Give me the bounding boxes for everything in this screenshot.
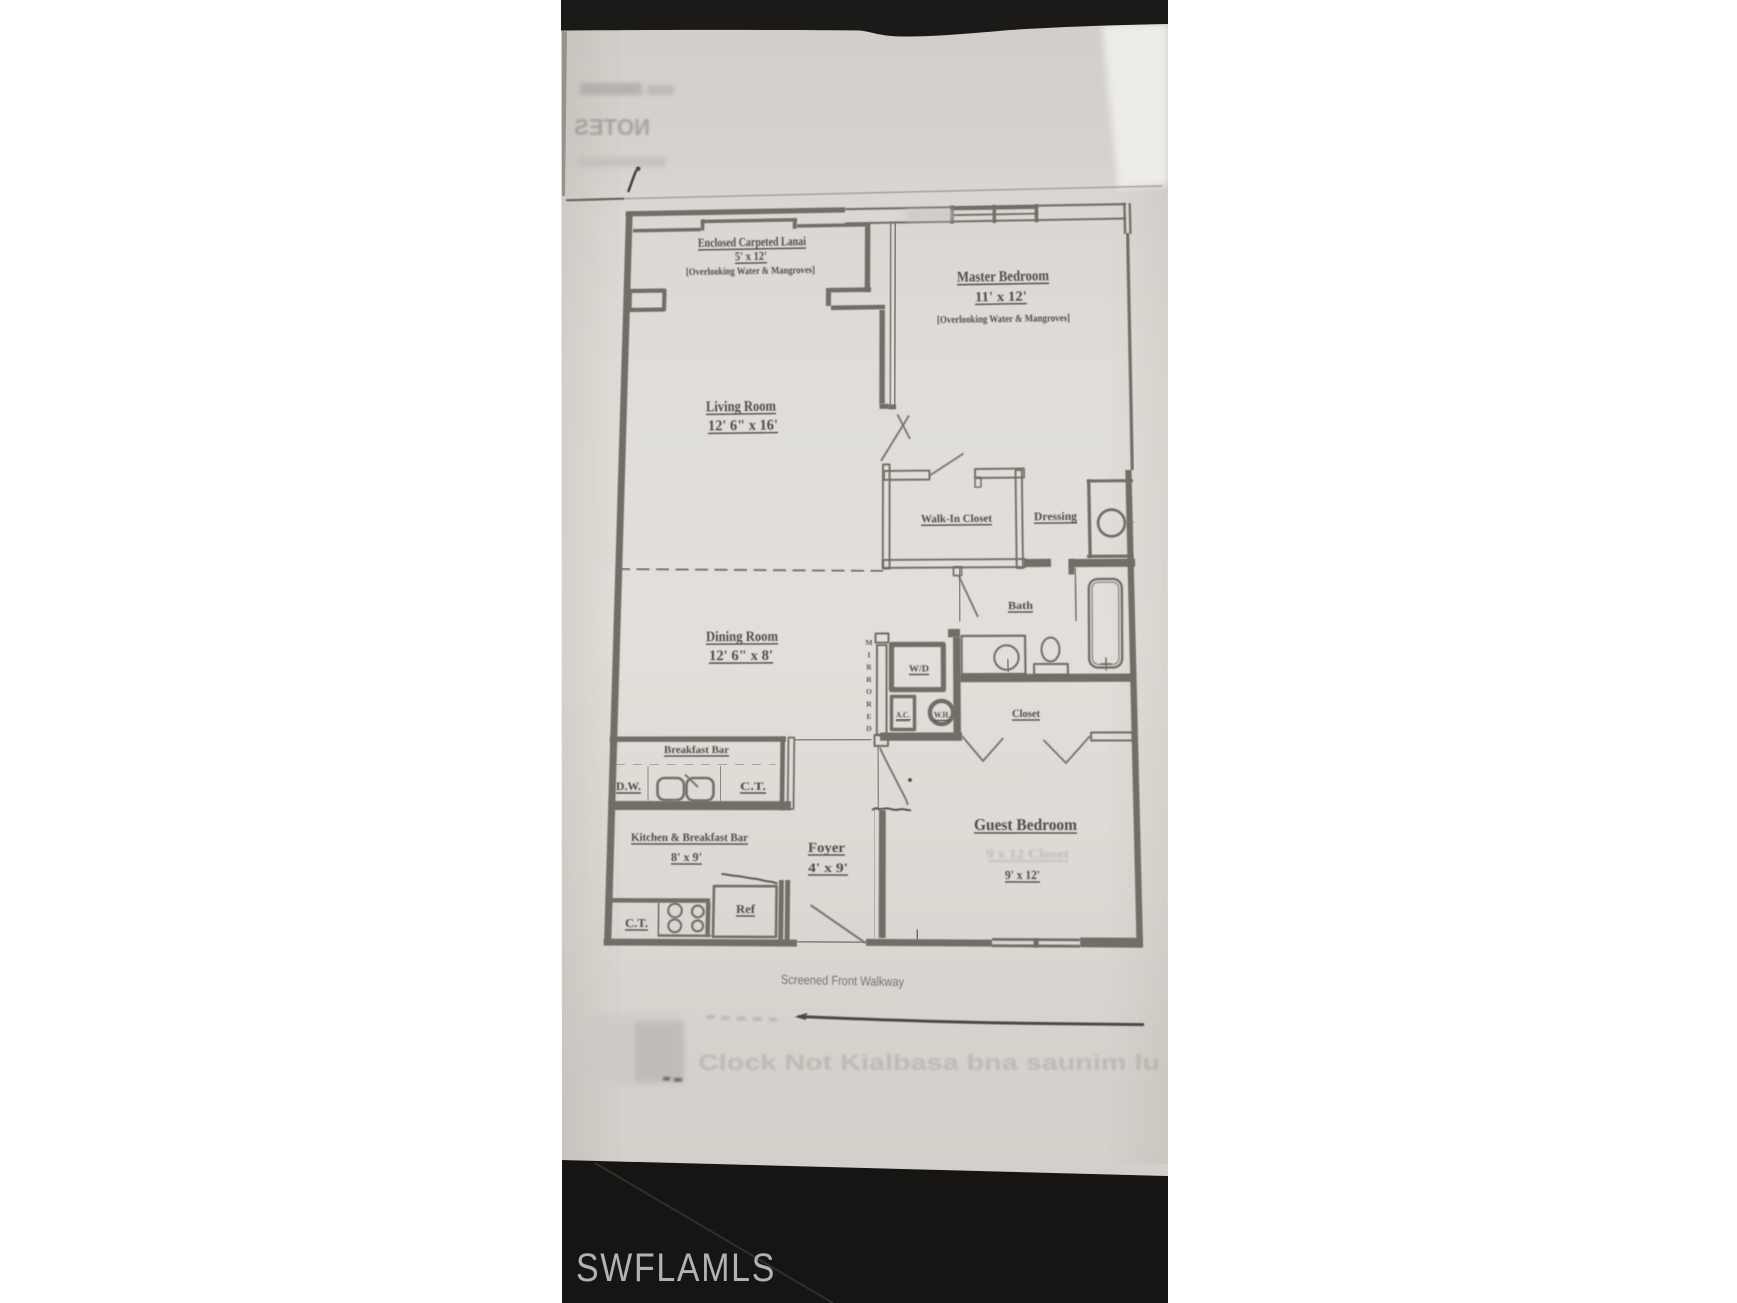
svg-text:Clock Not Kialbasa bna saunim: Clock Not Kialbasa bna saunim lu (698, 1050, 1160, 1075)
svg-text:E: E (866, 712, 871, 721)
svg-text:5' x 12': 5' x 12' (735, 249, 767, 264)
svg-text:Foyer: Foyer (808, 841, 845, 856)
svg-text:8' x 9': 8' x 9' (671, 850, 702, 864)
svg-text:9 x 12 Closet: 9 x 12 Closet (986, 846, 1070, 861)
svg-text:A.C.: A.C. (896, 709, 910, 719)
svg-text:NOTES: NOTES (574, 114, 650, 140)
svg-text:9' x 12': 9' x 12' (1005, 868, 1040, 882)
svg-text:Ref: Ref (736, 902, 756, 916)
svg-text:Kitchen & Breakfast Bar: Kitchen & Breakfast Bar (631, 832, 748, 844)
svg-text:D: D (866, 724, 872, 733)
svg-text:Closet: Closet (1012, 708, 1040, 720)
svg-text:Screened Front Walkway: Screened Front Walkway (781, 972, 905, 990)
svg-text:C.T.: C.T. (625, 916, 648, 930)
svg-text:Walk-In Closet: Walk-In Closet (921, 513, 992, 526)
svg-text:W/D: W/D (909, 664, 929, 674)
svg-text:Bath: Bath (1008, 600, 1033, 612)
svg-text:W.H.: W.H. (934, 709, 950, 719)
svg-text:12' 6" x 8': 12' 6" x 8' (709, 648, 773, 664)
svg-text:D.W.: D.W. (616, 779, 641, 793)
svg-text:SWFLAMLS: SWFLAMLS (576, 1246, 776, 1290)
svg-text:M: M (865, 638, 872, 647)
svg-text:R: R (866, 700, 872, 709)
svg-text:R: R (866, 663, 872, 672)
svg-text:Living Room: Living Room (706, 399, 777, 416)
svg-text:[Overlooking Water & Mangroves: [Overlooking Water & Mangroves] (937, 313, 1070, 326)
svg-text:Dressing: Dressing (1034, 511, 1077, 523)
svg-text:Guest Bedroom: Guest Bedroom (974, 815, 1077, 834)
svg-text:12' 6" x 16': 12' 6" x 16' (708, 418, 778, 435)
svg-text:I: I (868, 650, 871, 659)
svg-text:O: O (866, 687, 872, 696)
svg-text:[Overlooking Water & Mangroves: [Overlooking Water & Mangroves] (686, 265, 815, 278)
svg-text:R: R (866, 675, 872, 684)
svg-text:Dining Room: Dining Room (706, 629, 778, 645)
svg-text:4' x 9': 4' x 9' (808, 860, 848, 875)
svg-text:Enclosed Carpeted Lanai: Enclosed Carpeted Lanai (698, 234, 807, 250)
svg-text:C.T.: C.T. (740, 779, 766, 793)
svg-text:Breakfast Bar: Breakfast Bar (664, 745, 729, 756)
